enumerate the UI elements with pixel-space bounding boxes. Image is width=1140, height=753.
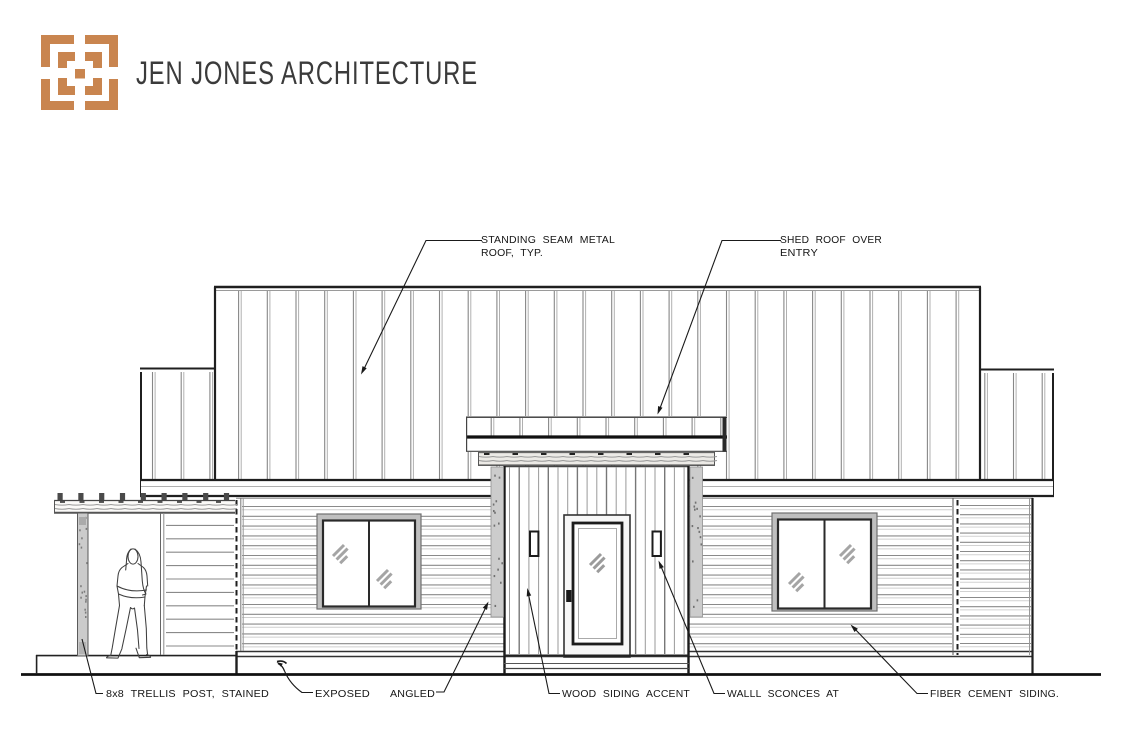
svg-text:ANGLED: ANGLED	[390, 689, 435, 700]
svg-text:FIBER CEMENT SIDING.: FIBER CEMENT SIDING.	[930, 689, 1059, 700]
svg-text:WALLL SCONCES AT: WALLL SCONCES AT	[727, 689, 839, 700]
svg-text:SHED ROOF OVER: SHED ROOF OVER	[780, 235, 882, 246]
svg-text:WOOD SIDING ACCENT: WOOD SIDING ACCENT	[562, 689, 691, 700]
svg-text:JEN JONES ARCHITECTURE: JEN JONES ARCHITECTURE	[136, 55, 478, 91]
svg-text:ENTRY: ENTRY	[780, 248, 818, 259]
svg-text:ROOF, TYP.: ROOF, TYP.	[481, 248, 543, 259]
svg-text:EXPOSED: EXPOSED	[315, 689, 370, 700]
svg-text:STANDING SEAM METAL: STANDING SEAM METAL	[481, 235, 615, 246]
svg-text:8x8 TRELLIS POST, STAINED: 8x8 TRELLIS POST, STAINED	[106, 689, 269, 700]
